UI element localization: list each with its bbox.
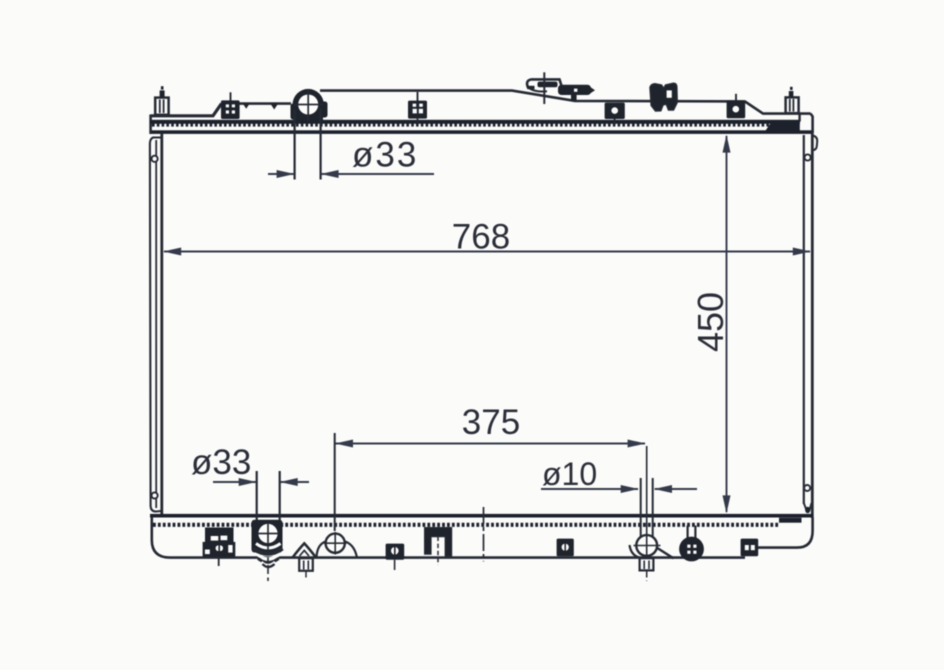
svg-text:ø10: ø10: [542, 456, 597, 492]
svg-text:ø33: ø33: [352, 136, 418, 175]
svg-text:768: 768: [452, 218, 510, 257]
svg-text:450: 450: [690, 292, 731, 352]
svg-text:ø33: ø33: [191, 443, 251, 482]
svg-text:375: 375: [462, 403, 520, 442]
